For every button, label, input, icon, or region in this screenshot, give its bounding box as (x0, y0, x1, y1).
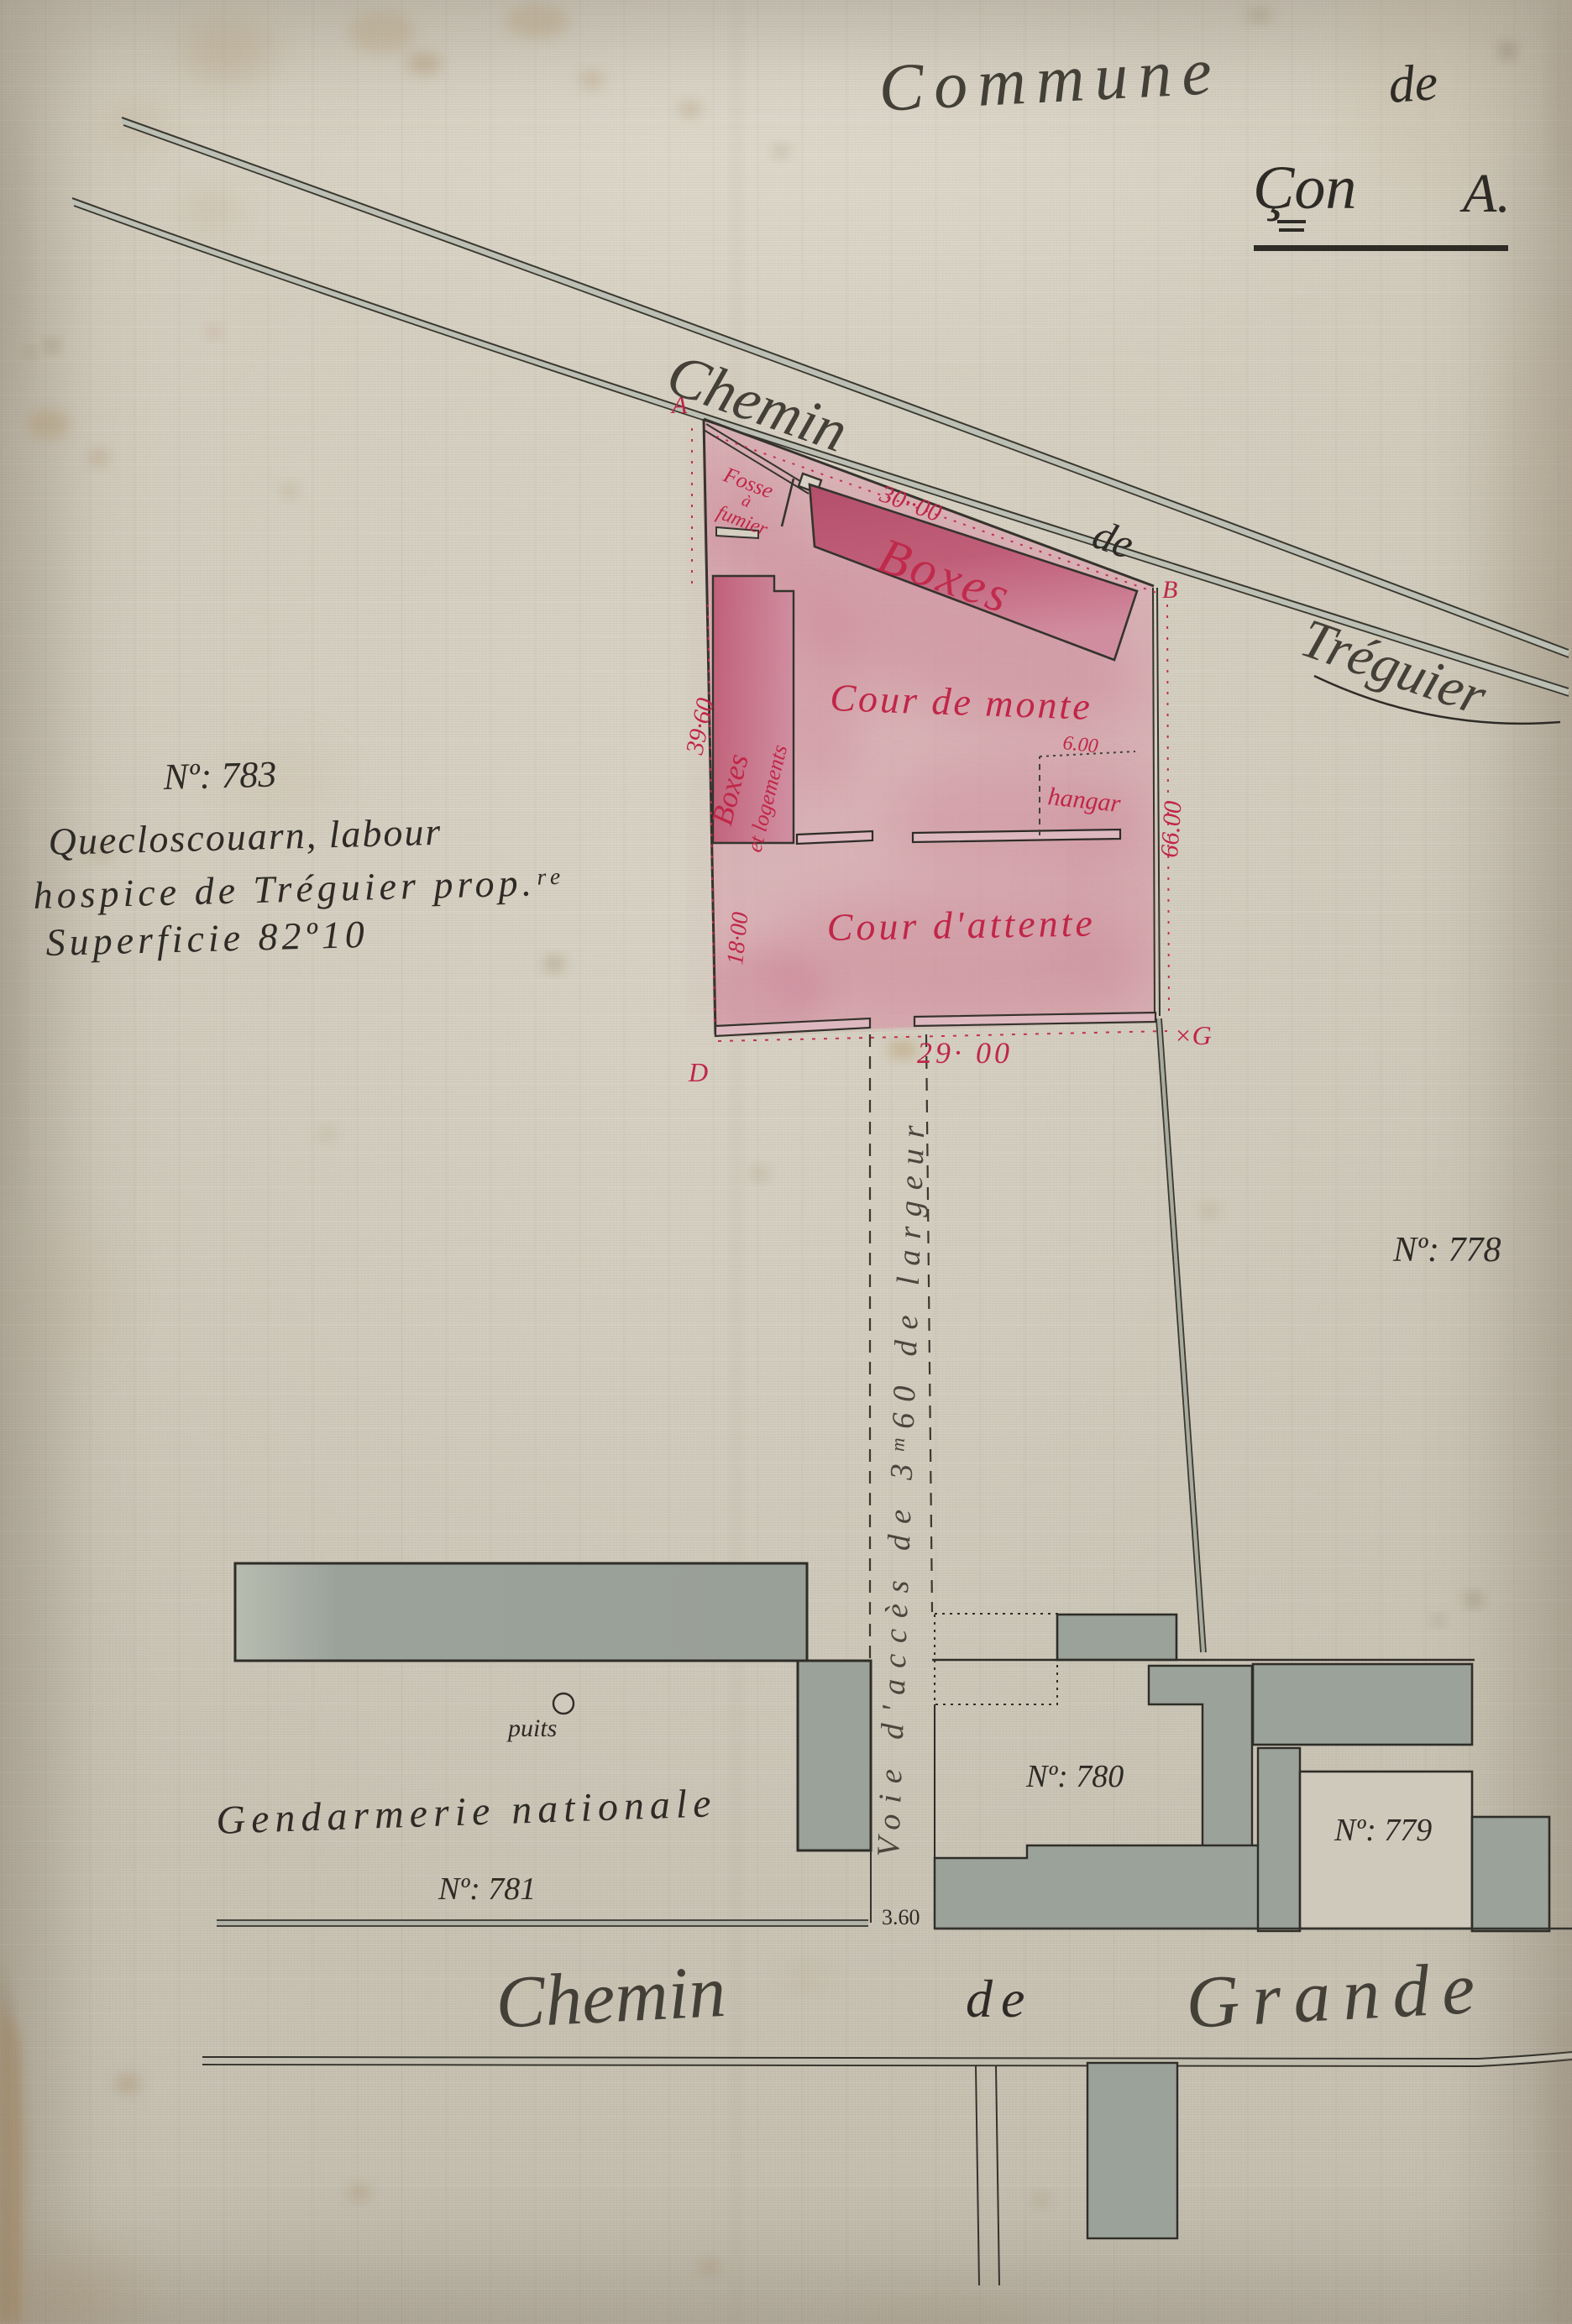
svg-text:Nº: 778: Nº: 778 (1392, 1231, 1501, 1269)
svg-text:D: D (688, 1057, 708, 1087)
svg-text:Commune: Commune (877, 34, 1223, 126)
svg-text:Nº: 781: Nº: 781 (438, 1871, 536, 1907)
svg-text:Gendarmerie nationale: Gendarmerie nationale (216, 1781, 718, 1843)
svg-text:puits: puits (506, 1714, 557, 1742)
svg-text:Voie d'accès de 3ᵐ60 de largeu: Voie d'accès de 3ᵐ60 de largeur (871, 1114, 932, 1858)
svg-text:Tréguier: Tréguier (1293, 607, 1494, 727)
svg-text:de: de (1386, 54, 1439, 114)
svg-text:B: B (1162, 576, 1177, 604)
svg-text:Superficie 82º10: Superficie 82º10 (45, 913, 369, 964)
svg-text:Chemin: Chemin (494, 1951, 727, 2044)
svg-text:Cour de monte: Cour de monte (830, 676, 1093, 728)
svg-text:×G: ×G (1174, 1020, 1212, 1050)
svg-text:6.00: 6.00 (1061, 732, 1098, 757)
svg-text:18·00: 18·00 (722, 911, 753, 966)
svg-text:Nº: 780: Nº: 780 (1025, 1759, 1124, 1794)
svg-text:de: de (1087, 510, 1140, 568)
svg-text:29· 00: 29· 00 (917, 1036, 1013, 1070)
svg-text:Nº: 783: Nº: 783 (162, 753, 277, 798)
svg-text:de: de (966, 1969, 1033, 2028)
svg-text:Çon: Çon (1253, 154, 1356, 222)
svg-text:A.: A. (1459, 163, 1511, 224)
svg-text:Cour d'attente: Cour d'attente (826, 901, 1096, 949)
svg-text:Nº: 779: Nº: 779 (1334, 1813, 1432, 1848)
svg-text:Grande: Grande (1184, 1947, 1489, 2044)
svg-text:Quecloscouarn, labour: Quecloscouarn, labour (48, 810, 443, 863)
svg-text:3.60: 3.60 (882, 1905, 920, 1929)
svg-text:66.00: 66.00 (1155, 800, 1187, 859)
svg-text:hospice de Tréguier prop.ʳᵉ: hospice de Tréguier prop.ʳᵉ (33, 860, 563, 916)
